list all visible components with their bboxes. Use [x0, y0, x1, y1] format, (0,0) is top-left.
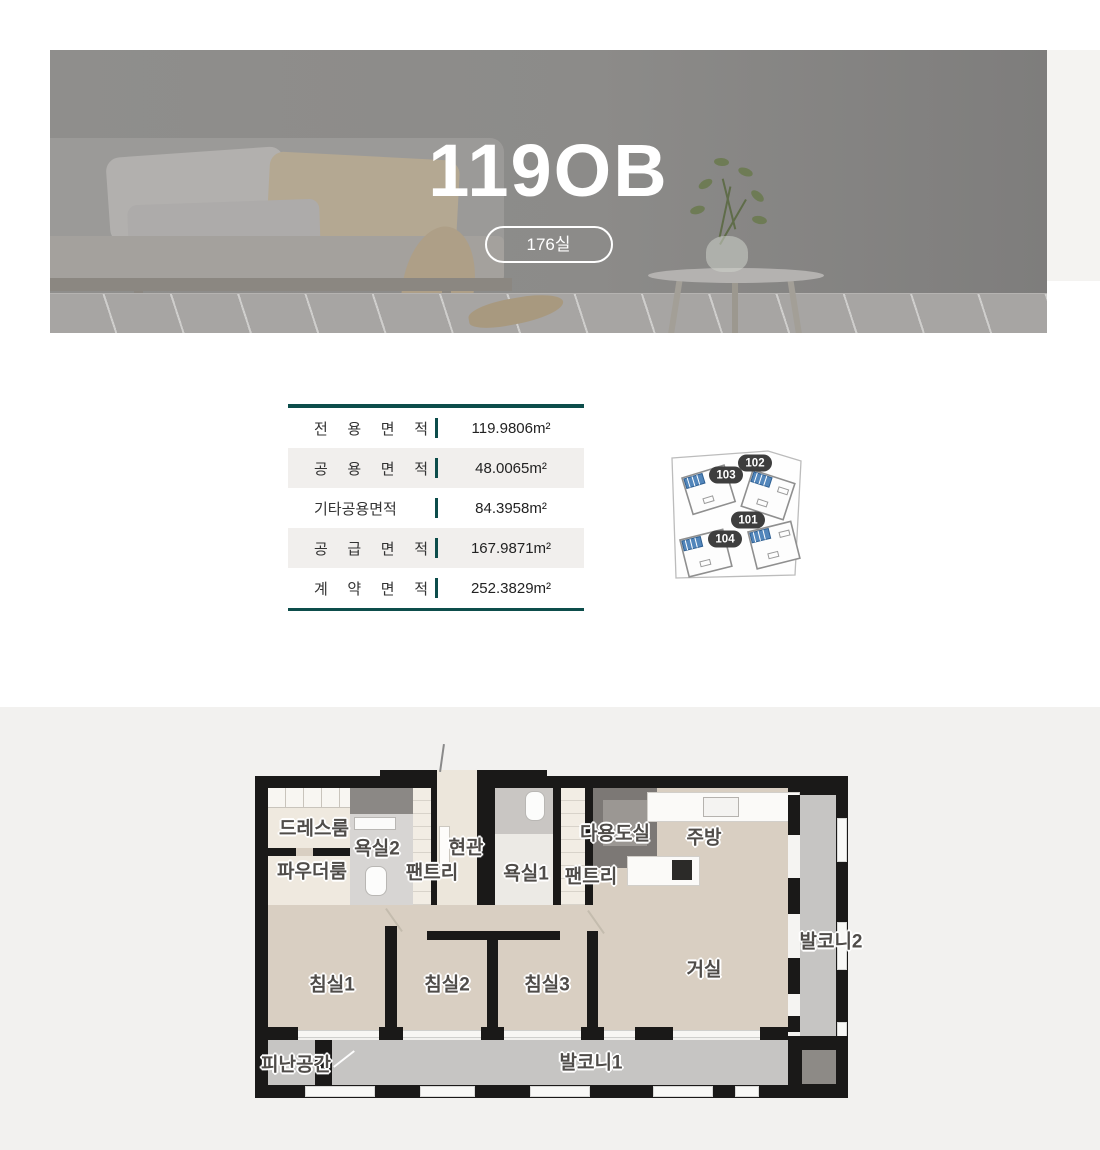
- room-label-bath1: 욕실1: [503, 859, 549, 886]
- wall: [255, 776, 848, 788]
- wall: [587, 931, 598, 1030]
- wall: [483, 770, 547, 778]
- plant-vase: [706, 236, 748, 272]
- building-key-plan: 102 103 101 104: [668, 448, 808, 584]
- wall: [427, 931, 560, 940]
- table-leg: [732, 282, 738, 333]
- floor-plan: 드레스룸 욕실2 팬트리 현관 파우더룸 욕실1 팬트리 다용도실 주방 발코니…: [255, 770, 848, 1100]
- wall: [635, 1027, 673, 1040]
- wall: [788, 958, 800, 994]
- room-label-balcony1: 발코니1: [559, 1048, 622, 1075]
- svg-text:102: 102: [745, 458, 764, 470]
- cooktop: [672, 860, 692, 880]
- wall: [788, 795, 800, 835]
- room-label-bath2: 욕실2: [354, 834, 400, 861]
- bed-frame: [50, 278, 512, 291]
- page: { "hero": { "title": "119OB", "badge": "…: [0, 0, 1100, 1150]
- area-label: 계 약 면 적: [314, 578, 428, 599]
- area-spec-table: 전 용 면 적 119.9806m² 공 용 면 적 48.0065m² 기타공…: [288, 404, 584, 611]
- area-label: 기타공용면적: [314, 498, 428, 519]
- window-band: [268, 1030, 788, 1038]
- wall: [760, 1027, 788, 1040]
- adjacent-slide-edge: [1047, 50, 1100, 281]
- room-label-utility: 다용도실: [580, 819, 650, 846]
- room-label-pantry2: 팬트리: [565, 862, 617, 889]
- area-value: 84.3958m²: [438, 500, 584, 517]
- window: [735, 1086, 759, 1097]
- wall: [487, 940, 498, 1030]
- area-value: 119.9806m²: [438, 420, 584, 437]
- room-label-bedroom3: 침실3: [524, 970, 570, 997]
- area-label: 전 용 면 적: [314, 418, 428, 439]
- unit-badge-101: 101: [731, 512, 765, 529]
- closet-cabinets: [268, 788, 350, 808]
- wall: [313, 848, 350, 856]
- wall: [385, 926, 397, 1030]
- unit-badge-103: 103: [709, 467, 743, 484]
- table-row: 전 용 면 적 119.9806m²: [288, 408, 584, 448]
- window: [837, 818, 847, 862]
- window: [530, 1086, 590, 1097]
- unit-type-title: 119OB: [50, 128, 1047, 213]
- table-row: 공 용 면 적 48.0065m²: [288, 448, 584, 488]
- balcony1-floor: [268, 1040, 788, 1085]
- unit-badge-104: 104: [708, 531, 742, 548]
- unit-badge-102: 102: [738, 455, 772, 472]
- area-label: 공 급 면 적: [314, 538, 428, 559]
- room-label-dressroom: 드레스룸: [279, 814, 349, 841]
- svg-text:101: 101: [738, 515, 758, 527]
- window: [653, 1086, 713, 1097]
- room-label-entrance: 현관: [449, 833, 484, 860]
- table-bottom-rule: [288, 608, 584, 611]
- room-label-kitchen: 주방: [687, 823, 722, 850]
- wall: [268, 848, 296, 856]
- balcony2-floor: [800, 795, 836, 1038]
- wall: [483, 788, 495, 905]
- hero-banner: 119OB 176실: [50, 50, 1047, 333]
- room-label-powder: 파우더룸: [277, 857, 347, 884]
- unit-count-badge: 176실: [485, 226, 613, 263]
- room-pantry1: [413, 788, 431, 905]
- flue-line: [439, 744, 445, 772]
- table-row: 기타공용면적 84.3958m²: [288, 488, 584, 528]
- wall: [553, 788, 561, 905]
- room-label-balcony2: 발코니2: [799, 927, 862, 954]
- ac-unit-room: [802, 1050, 836, 1084]
- svg-text:103: 103: [716, 470, 735, 482]
- plant-leaf: [751, 215, 767, 225]
- wall: [788, 878, 800, 914]
- room-label-living: 거실: [687, 955, 722, 982]
- area-value: 252.3829m²: [438, 580, 584, 597]
- room-label-pantry1: 팬트리: [406, 858, 458, 885]
- toilet: [525, 791, 545, 821]
- room-label-bedroom2: 침실2: [424, 970, 470, 997]
- kitchen-sink: [703, 797, 739, 817]
- wall: [788, 1016, 800, 1032]
- wall: [268, 1027, 298, 1040]
- storage-closet: [350, 788, 413, 814]
- wall: [380, 770, 433, 778]
- area-value: 167.9871m²: [438, 540, 584, 557]
- bath-sink: [354, 817, 396, 830]
- room-label-bedroom1: 침실1: [309, 970, 355, 997]
- wall: [481, 1027, 504, 1040]
- table-row: 공 급 면 적 167.9871m²: [288, 528, 584, 568]
- window: [420, 1086, 475, 1097]
- toilet: [365, 866, 387, 896]
- area-label: 공 용 면 적: [314, 458, 428, 479]
- wall: [581, 1027, 604, 1040]
- area-value: 48.0065m²: [438, 460, 584, 477]
- key-plan-svg: 102 103 101 104: [668, 448, 808, 584]
- svg-text:104: 104: [715, 534, 735, 546]
- floor-plan-section: 드레스룸 욕실2 팬트리 현관 파우더룸 욕실1 팬트리 다용도실 주방 발코니…: [0, 707, 1100, 1150]
- room-label-evacuation: 피난공간: [261, 1050, 331, 1077]
- window: [305, 1086, 375, 1097]
- wall: [379, 1027, 403, 1040]
- table-row: 계 약 면 적 252.3829m²: [288, 568, 584, 608]
